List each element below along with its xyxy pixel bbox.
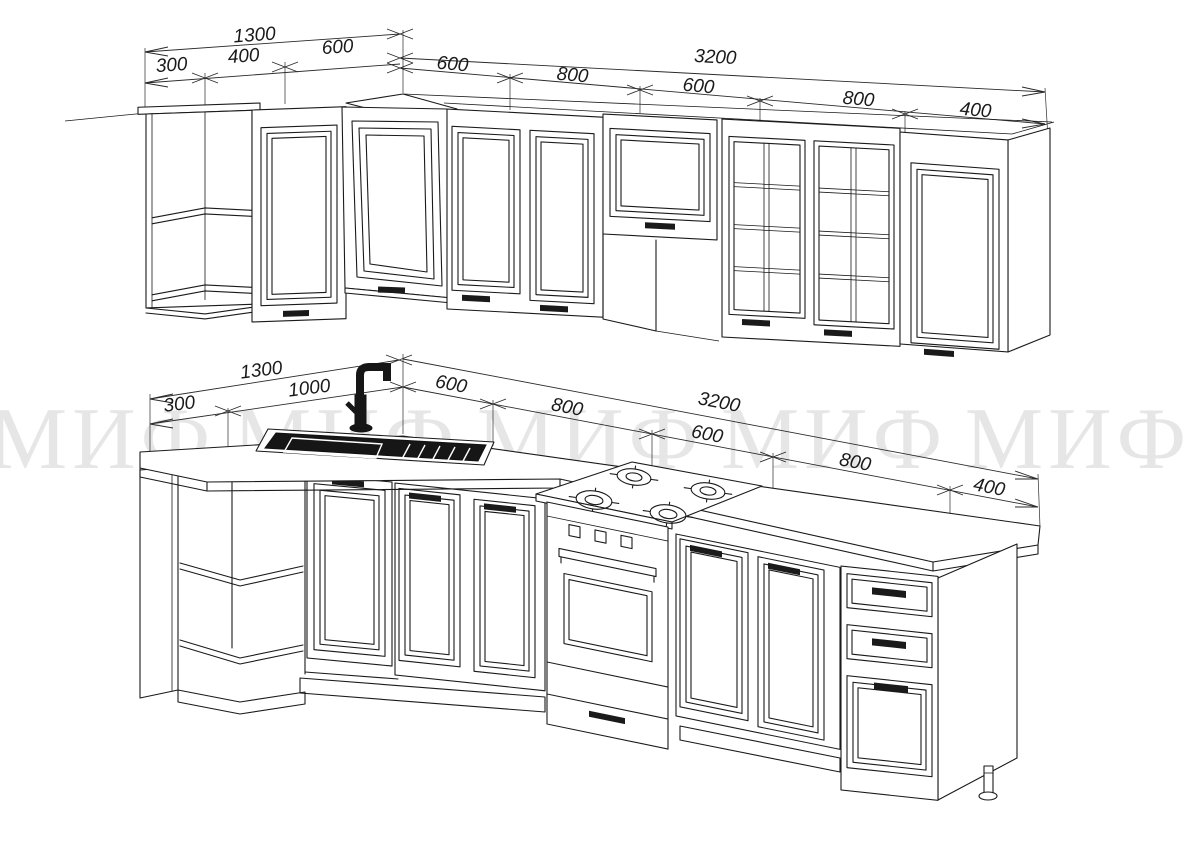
- oven-knob: [569, 525, 580, 538]
- dim-lower-seg-300: 300: [162, 392, 196, 417]
- oven-knob: [595, 530, 606, 543]
- upper-corner-open-shelf: [138, 103, 260, 321]
- dim-upper-seg-800-r1: 800: [556, 64, 590, 88]
- dim-upper-overall-right: 3200: [694, 46, 738, 69]
- base-drawer-cabinet-400: [841, 544, 1017, 800]
- dim-upper-seg-800-r2: 800: [842, 88, 876, 112]
- upper-cabinet-row: [65, 94, 1054, 361]
- dim-upper-seg-600-r2: 600: [682, 75, 716, 99]
- upper-glass-cabinet-800: [722, 119, 900, 346]
- drawing-canvas: МИФ МИФ МИФ МИФ МИФ 1300 300 400: [0, 0, 1200, 848]
- watermark-text: МИФ: [721, 391, 947, 488]
- dim-upper-overall-left: 1300: [233, 24, 277, 48]
- dim-lower-overall-left: 1300: [239, 357, 284, 383]
- dim-upper-seg-600-left: 600: [321, 36, 355, 59]
- base-left-bottom-edge: [305, 672, 398, 679]
- upper-corner-cabinet-600: [342, 94, 457, 303]
- base-two-door-cabinet-800-right: [676, 534, 840, 749]
- upper-cabinet-400: [252, 107, 346, 322]
- base-corner-open-shelf: [140, 461, 305, 714]
- upper-two-door-cabinet-800: [447, 109, 603, 317]
- base-two-door-cabinet-800-left: [395, 483, 545, 691]
- kitchen-technical-drawing: МИФ МИФ МИФ МИФ МИФ 1300 300 400: [0, 0, 1200, 848]
- dim-upper-seg-300: 300: [155, 54, 189, 77]
- oven-front: [547, 502, 668, 749]
- watermark-text: МИФ: [965, 391, 1191, 488]
- base-sink-corner-cabinet: [307, 474, 392, 666]
- dim-upper-seg-400: 400: [227, 45, 261, 68]
- oven-knob: [621, 535, 632, 548]
- upper-lift-door-cabinet-600: [603, 114, 719, 341]
- dim-upper-seg-600-r1: 600: [436, 53, 470, 77]
- upper-dim-ticks: [192, 29, 918, 119]
- upper-end-cabinet-400: [900, 128, 1050, 361]
